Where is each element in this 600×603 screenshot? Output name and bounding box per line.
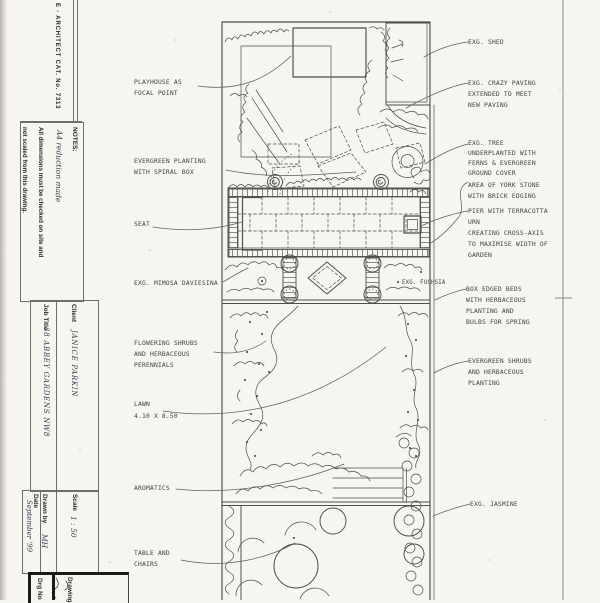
date-value: September '99 [25,500,33,552]
label-crazy-3: NEW PAVING [468,102,508,109]
label-pier-4: TO MAXIMISE WIDTH OF [468,241,548,248]
titleblock-border [73,0,74,122]
jasmine-coils [396,433,423,595]
mimosa-bed-scribble [225,262,283,292]
label-flowering-1: FLOWERING SHRUBS [134,340,198,347]
brick-edging-left [229,197,238,248]
titleblock-border [52,572,55,600]
notes-line2: not scaled from this drawing. [21,127,28,213]
label-mimosa: EXG. MIMOSA DAVIESINA [134,280,218,287]
label-boxbeds-3: PLANTING AND [466,308,514,315]
drg-no-label: Drg No [36,578,43,600]
drawing-label: Drawing [66,577,73,603]
pedestal-right [366,258,379,298]
leaders-left [153,56,386,563]
label-evshrubs-1: EVERGREEN SHRUBS [468,358,532,365]
label-seat: SEAT [134,221,150,228]
label-evergreen-2: WITH SPIRAL BOX [134,169,194,176]
chair-arcs [236,522,329,599]
right-planting-mass [358,60,428,132]
evergreen-hedge-scribble [228,178,361,189]
label-boxbeds-2: WITH HERBACEOUS [466,297,526,304]
notes-heading: NOTES: [71,127,78,152]
table-and-chairs-circles [274,506,424,588]
shed-outline [386,23,430,105]
client-value: JANICE PARKIN [70,330,78,397]
label-tree-2: UNDERPLANTED WITH [468,150,536,157]
label-evshrubs-2: AND HERBACEOUS [468,369,524,376]
bed-edge-lines [222,300,430,304]
evergreen-border-right [398,306,428,468]
label-tree-1: EXG. TREE [468,140,504,147]
client-job-box [30,300,99,492]
boundary-wall [222,22,430,600]
terrace [228,188,430,257]
shed-inner-wall [386,23,427,102]
seat [243,198,263,251]
drawing-sheet: PLAYHOUSE AS FOCAL POINT EVERGREEN PLANT… [0,0,600,600]
client-label: Client [70,304,77,322]
label-pier-1: PIER WITH TERRACOTTA [468,208,548,215]
scale-label: Scale [71,494,78,511]
drawn-by-label: Drawn by [41,494,48,523]
fuchsia-bed-scribble [384,264,422,292]
drawn-by-value: MH [40,534,49,548]
label-table-1: TABLE AND [134,550,170,557]
aromatics-bed-scribble [225,453,370,595]
top-hedge-scribble [225,27,387,50]
label-lawn-dims: 4.10 X 8.50 [134,413,178,420]
label-table-2: CHAIRS [134,561,158,568]
label-tree-4: GROUND COVER [468,170,516,177]
job-title-value: 38 ABBEY GARDENS NW8 [42,327,50,437]
pier-urn-inner [408,220,418,230]
titleblock-border [77,0,78,122]
leaders-right [406,42,470,516]
left-planting-mass [230,84,287,176]
label-crazy-1: EXG. CRAZY PAVING [468,80,536,87]
titleblock-border [56,490,57,572]
label-york-1: AREA OF YORK STONE [468,182,540,189]
notes-handwritten: A4 reduction made [54,130,64,203]
label-aromatics: AROMATICS [134,485,170,492]
spiral-box-right [374,175,389,190]
lower-terrace [222,502,430,600]
structures [241,23,430,502]
playhouse-outline [293,28,366,77]
brick-edging-top [229,189,429,197]
lower-terrace-edges [222,502,430,600]
label-pier-2: URN [468,219,480,226]
crazy-paving-sweeps [386,106,426,134]
label-evergreen-1: EVERGREEN PLANTING [134,158,206,165]
pier-with-urn [404,216,421,233]
label-boxbeds-1: BOX EDGED BEDS [466,286,522,293]
scale-value: 1 : 50 [69,516,78,538]
shed-corner-scribble [386,28,404,81]
label-flowering-3: PERENNIALS [134,362,174,369]
label-boxbeds-4: BULBS FOR SPRING [466,319,530,326]
scan-edge-shadow [0,0,7,600]
paving-details [268,106,426,194]
drawing-number-box [28,572,129,603]
flowering-border-left [230,306,298,470]
titleblock-border [56,300,57,490]
edge-strip-text: E - ARCHITECT CAT. No. 7313 [54,3,60,109]
label-evshrubs-3: PLANTING [468,380,500,387]
label-pier-5: GARDEN [468,252,492,259]
label-york-2: WITH BRICK EDGING [468,193,536,200]
label-playhouse-1: PLAYHOUSE AS [134,79,182,86]
label-flowering-2: AND HERBACEOUS [134,351,190,358]
label-playhouse-2: FOCAL POINT [134,90,178,97]
date-label: Date [32,494,39,508]
label-crazy-2: EXTENDED TO MEET [468,91,532,98]
york-stone-flagstones [238,197,420,248]
leader-lines [153,42,470,563]
label-lawn: LAWN [134,401,150,408]
label-fuchsia: EXG. FUCHSIA [402,280,446,286]
terrace-outer [228,188,430,257]
pedestal-left [283,258,296,298]
cross-axis [222,255,430,304]
label-shed: EXG. SHED [468,39,504,46]
label-jasmine: EXG. JASMINE [470,501,518,508]
label-pier-3: CREATING CROSS-AXIS [468,230,544,237]
steps [333,468,407,502]
label-tree-3: FERNS & EVERGREEN [468,160,536,167]
notes-line1: All dimensions must be checked on site a… [37,127,44,257]
terrace-inner [238,197,420,248]
